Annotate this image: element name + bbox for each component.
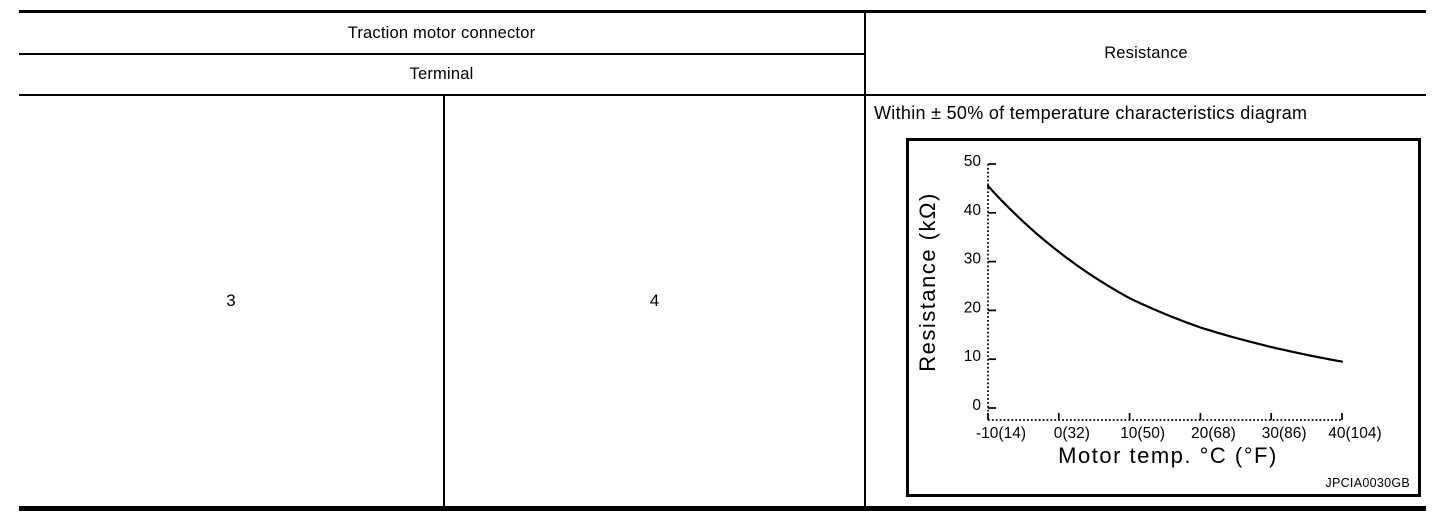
header-terminal: Terminal [19,55,864,94]
x-tick-label: 20(68) [1191,425,1236,442]
x-axis-title: Motor temp. °C (°F) [1058,443,1278,468]
temperature-characteristics-chart-frame: Resistance (kΩ) Motor temp. °C (°F) JPCI… [906,138,1421,497]
x-tick-label: 0(32) [1054,425,1090,442]
y-axis-title: Resistance (kΩ) [915,192,940,372]
resistance-curve [988,186,1342,362]
header-traction-motor-connector: Traction motor connector [19,13,864,53]
terminal-3-cell: 3 [19,96,443,506]
x-tick-label: -10(14) [976,425,1026,442]
resistance-spec-text: Within ± 50% of temperature characterist… [874,101,1426,125]
figure-code-watermark: JPCIA0030GB [1325,476,1410,490]
y-tick-label: 30 [964,251,982,268]
resistance-vs-temperature-chart: Resistance (kΩ) Motor temp. °C (°F) JPCI… [909,141,1418,494]
y-tick-label: 20 [964,299,982,316]
y-tick-label: 10 [964,348,982,365]
x-tick-label: 10(50) [1120,425,1165,442]
y-tick-label: 0 [972,397,981,414]
header-resistance: Resistance [866,13,1426,94]
terminal-4-cell: 4 [445,96,864,506]
table-bottom-border [19,506,1426,511]
x-tick-label: 40(104) [1328,425,1381,442]
service-manual-resistance-table: Traction motor connector Terminal Resist… [0,0,1456,518]
y-tick-label: 50 [964,153,982,170]
x-tick-label: 30(86) [1262,425,1307,442]
y-tick-label: 40 [964,202,982,219]
